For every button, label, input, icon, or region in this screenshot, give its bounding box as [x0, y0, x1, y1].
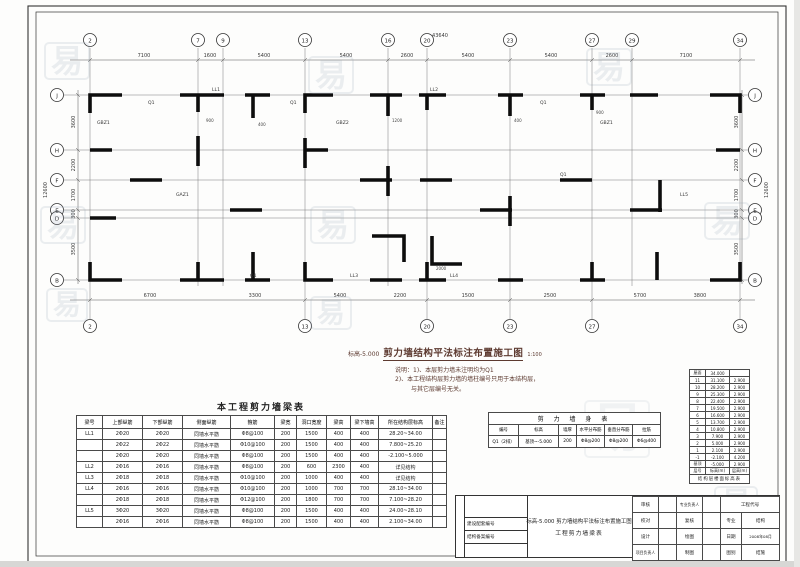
cell: 2Φ16: [143, 517, 183, 528]
cell: [433, 440, 447, 451]
cell: 2Φ16: [103, 517, 143, 528]
bottom-dimensions: 6700 3300 5400 2200 1500 2500 5700 3800: [144, 293, 707, 299]
title-block-grid: 审核 专业负责人 工程代号 校对 复核 专业 结构 设计: [632, 496, 779, 557]
wall-tag: Q1: [540, 100, 547, 106]
plan-scale: 1:100: [527, 352, 541, 358]
title-block-codes: 建设配套编号 结构备案编号: [464, 496, 528, 557]
floor-height: 2.900: [730, 433, 750, 440]
beam-row: 2Φ18 2Φ18 同墙水平筋 Φ12@100 200 1800 700 700…: [77, 495, 447, 506]
watermark-stamp: 易: [310, 296, 352, 330]
floor-elev: 19.500: [706, 405, 730, 412]
cell: 400: [351, 429, 379, 440]
beam-id-cell: LL4: [77, 484, 103, 495]
floor-elev: 22.400: [706, 398, 730, 405]
cell: 400: [327, 440, 351, 451]
plan-caption: 标高-5.000 剪力墙结构平法标注布置施工图 1:100: [348, 345, 648, 361]
cell: 1500: [297, 517, 327, 528]
wall-tag: Q1: [290, 100, 297, 106]
small-dim: 2000: [436, 266, 447, 271]
cell: 2Φ16: [103, 462, 143, 473]
cell: 1500: [297, 451, 327, 462]
cell: [433, 506, 447, 517]
wall-tag: LL5: [680, 192, 688, 198]
grid-row-label: B: [55, 279, 59, 285]
col-header: 垂直分布筋: [605, 425, 633, 436]
dim-label: 1700: [71, 189, 77, 202]
dim-label: 2200: [394, 293, 407, 299]
tb-label: 工程代号: [721, 497, 780, 513]
cell: Φ8@100: [231, 429, 275, 440]
small-dim: 900: [206, 118, 214, 123]
cell: 2Φ22: [143, 440, 183, 451]
wall-tag: GAZ1: [176, 192, 189, 198]
floor-elev: 5.000: [706, 440, 730, 447]
cell: Φ8@100: [231, 462, 275, 473]
floor-table-title: 结构层楼面标高表: [690, 475, 750, 484]
wall-tag: LL4: [450, 273, 458, 279]
wall-tag: LL3: [350, 273, 358, 279]
beam-row: LL3 2Φ18 2Φ18 同墙水平筋 Φ10@100 200 1000 400…: [77, 473, 447, 484]
tb-value: [659, 513, 677, 529]
beam-row: 2Φ16 2Φ16 同墙水平筋 Φ8@100 200 1500 400 400 …: [77, 517, 447, 528]
beam-id-cell: [77, 517, 103, 528]
dim-label: 2600: [401, 53, 414, 59]
dim-label: 3600: [71, 116, 77, 129]
cell: 200: [275, 517, 297, 528]
drawing-sheet: 易 易 易 易 易 易 易 易 易 易 易 易: [0, 0, 800, 567]
small-dim: 400: [514, 118, 522, 123]
floor-height: 2.900: [730, 377, 750, 384]
beam-id-cell: LL2: [77, 462, 103, 473]
cell: 200: [275, 462, 297, 473]
beam-row: 2Φ22 2Φ22 同墙水平筋 Φ10@100 200 1500 400 400…: [77, 440, 447, 451]
floor-no: 8: [690, 398, 706, 405]
cell: 详见结构: [379, 462, 433, 473]
cell: [433, 429, 447, 440]
floor-row: 屋面 34.000: [690, 370, 750, 377]
floor-row: 9 25.300 2.900: [690, 391, 750, 398]
wall-body-schedule: 剪 力 墙 身 表 编号 标高 墙厚 水平分布筋 垂直分布筋 拉筋 Q1（2排）…: [488, 412, 661, 448]
tb-value: [659, 545, 677, 561]
floor-height: 2.900: [730, 461, 750, 468]
col-header: 标高(m): [706, 468, 730, 475]
cell: 400: [351, 440, 379, 451]
floor-no: 5: [690, 419, 706, 426]
grid-row-label: H: [55, 149, 59, 155]
tb-label: 设计: [633, 529, 659, 545]
cell: [433, 462, 447, 473]
floor-row: -1 -2.100 4.200: [690, 454, 750, 461]
cell: 200: [275, 484, 297, 495]
floor-elev: 13.700: [706, 419, 730, 426]
grid-col-label: 20: [424, 39, 431, 45]
grid-row-label: E: [753, 209, 757, 215]
grid-col-label: 2: [88, 325, 92, 331]
scan-edge-bottom: [0, 561, 800, 567]
col-header: 下部纵筋: [143, 416, 183, 429]
cell: 200: [275, 495, 297, 506]
grid-col-label: 13: [302, 39, 309, 45]
cell: 2.100~34.00: [379, 517, 433, 528]
beam-row: LL4 2Φ16 2Φ16 同墙水平筋 Φ10@100 200 1000 700…: [77, 484, 447, 495]
floor-height: 2.900: [730, 391, 750, 398]
tb-value: [703, 497, 721, 513]
col-header: 拉筋: [633, 425, 661, 436]
dim-label: 5700: [634, 293, 647, 299]
drawing-title-line2: 工程剪力墙梁表: [526, 528, 632, 537]
dim-label: 6700: [144, 293, 157, 299]
dim-label: 3500: [71, 243, 77, 256]
floor-elev: 10.800: [706, 426, 730, 433]
floor-height: 2.900: [730, 426, 750, 433]
floor-no: 10: [690, 384, 706, 391]
cell: 600: [297, 462, 327, 473]
title-block: 建设配套编号 结构备案编号 标高-5.000 剪力墙结构平法标注布置施工图 工程…: [455, 495, 780, 558]
floor-row: 3 7.900 2.900: [690, 433, 750, 440]
note-line: 说明：1)、本层剪力墙未注明均为Q1: [395, 366, 625, 375]
tb-label: 绘图: [677, 529, 703, 545]
beam-id-cell: LL1: [77, 429, 103, 440]
watermark-stamp: 易: [46, 288, 88, 322]
cell: 200: [275, 473, 297, 484]
col-header: 水平分布筋: [577, 425, 605, 436]
tb-value: [703, 545, 721, 561]
watermark-stamp: 易: [586, 48, 632, 86]
cell: [433, 451, 447, 462]
cell: 400: [327, 451, 351, 462]
total-width-label: 43640: [432, 33, 448, 39]
cell: 1500: [297, 429, 327, 440]
cell: 同墙水平筋: [183, 473, 231, 484]
floor-row: 11 31.100 2.900: [690, 377, 750, 384]
col-header: 层号: [690, 468, 706, 475]
tb-label: 审核: [633, 497, 659, 513]
floor-height: [730, 370, 750, 377]
grid-col-label: 27: [589, 325, 596, 331]
top-grid-labels: 2 7 9 13 16 20 23 27 29 34: [88, 39, 744, 45]
wall-segments: [90, 95, 740, 280]
col-header: 备注: [433, 416, 447, 429]
floor-elevation-table: 屋面 34.000 11 31.100 2.900 10 28.200 2.90…: [689, 369, 750, 484]
floor-row: 8 22.400 2.900: [690, 398, 750, 405]
floor-height: 2.900: [730, 412, 750, 419]
code-label: 结构备案编号: [465, 531, 527, 544]
dim-label: 7100: [138, 53, 151, 59]
grid-row-label: H: [753, 149, 757, 155]
beam-header-row: 梁号 上部纵筋 下部纵筋 侧面纵筋 箍筋 梁宽 洞口宽度 梁高 梁下墙高 所在结…: [77, 416, 447, 429]
plan-title-text: 剪力墙结构平法标注布置施工图: [383, 345, 523, 361]
wall-tag-labels: Q1 GBZ1 LL1 Q1 GBZ2 LL2 Q1 GBZ1 LL3 LL4 …: [97, 87, 688, 279]
floor-no: 屋面: [690, 370, 706, 377]
cell: 同墙水平筋: [183, 429, 231, 440]
watermark-stamp: 易: [310, 206, 356, 244]
tb-label: 图别: [721, 545, 742, 561]
wall-tag: LL1: [212, 87, 220, 93]
bottom-grid-bubbles: [84, 320, 747, 333]
beam-id-cell: [77, 495, 103, 506]
grid-col-label: 23: [507, 39, 514, 45]
cell: 2Φ16: [103, 484, 143, 495]
floor-elev: 34.000: [706, 370, 730, 377]
floor-row: 5 13.700 2.900: [690, 419, 750, 426]
wall-data-row: Q1（2排） 基顶~-5.000 200 Φ8@200 Φ8@200 Φ6@40…: [489, 436, 661, 448]
wall-tag: Q1: [560, 172, 567, 178]
tb-label: 校对: [633, 513, 659, 529]
floor-height: 2.900: [730, 440, 750, 447]
col-header: 梁高: [327, 416, 351, 429]
right-grid-labels: J H F E D B: [753, 94, 757, 285]
cell: 200: [275, 506, 297, 517]
cell: 400: [351, 473, 379, 484]
floor-row: 2 5.000 2.900: [690, 440, 750, 447]
floor-no: 6: [690, 412, 706, 419]
cell: 同墙水平筋: [183, 451, 231, 462]
cell: [433, 473, 447, 484]
floor-no: 3: [690, 433, 706, 440]
floor-height: 2.900: [730, 398, 750, 405]
cell: Φ8@200: [605, 436, 633, 448]
cell: 400: [351, 506, 379, 517]
dim-label: 7100: [680, 53, 693, 59]
cell: Φ8@100: [231, 517, 275, 528]
tb-label: 项目负责人: [633, 545, 659, 561]
beam-row: LL5 3Φ20 3Φ20 同墙水平筋 Φ8@100 200 1500 400 …: [77, 506, 447, 517]
tb-label: 复核: [677, 513, 703, 529]
beam-schedule: 本工程剪力墙梁表 梁号 上部纵筋 下部纵筋 侧面纵筋 箍筋 梁宽 洞口宽度 梁高…: [76, 400, 446, 528]
cell: 1000: [297, 484, 327, 495]
floor-row: 4 10.800 2.900: [690, 426, 750, 433]
floor-footer-row: 层号 标高(m) 层高(m): [690, 468, 750, 475]
cell: 28.10~34.00: [379, 484, 433, 495]
beam-id-cell: [77, 440, 103, 451]
beam-row: 2Φ20 2Φ20 同墙水平筋 Φ8@100 200 1500 400 400 …: [77, 451, 447, 462]
floor-row: 1 2.100 2.900: [690, 447, 750, 454]
floor-no: 7: [690, 405, 706, 412]
dim-label: 3300: [249, 293, 262, 299]
total-height-label: 12600: [764, 182, 770, 198]
cell: 400: [327, 506, 351, 517]
cell: 1500: [297, 506, 327, 517]
cell: 7.100~28.20: [379, 495, 433, 506]
floor-no: 基顶: [690, 461, 706, 468]
floor-elev: 28.200: [706, 384, 730, 391]
elevation-label: 标高-5.000: [348, 349, 379, 358]
floor-no: -1: [690, 454, 706, 461]
col-header: 梁下墙高: [351, 416, 379, 429]
cell: [433, 484, 447, 495]
dim-label: 2500: [544, 293, 557, 299]
col-header: 层高(m): [730, 468, 750, 475]
cell: 2Φ22: [103, 440, 143, 451]
wall-tag: GBZ1: [600, 120, 613, 126]
floor-elev: 2.100: [706, 447, 730, 454]
left-grid-labels: J H F E D B: [55, 94, 59, 285]
beam-id-cell: [77, 451, 103, 462]
cell: [433, 517, 447, 528]
bottom-grid-labels: 2 13 20 23 27 34: [88, 325, 744, 331]
dim-label: 5400: [258, 53, 271, 59]
beam-id-cell: LL5: [77, 506, 103, 517]
col-header: 梁宽: [275, 416, 297, 429]
cell: 1500: [297, 440, 327, 451]
dim-label: 3800: [694, 293, 707, 299]
tb-label: 专业负责人: [677, 497, 703, 513]
dim-label: 1600: [204, 53, 217, 59]
beam-row: LL1 2Φ20 2Φ20 同墙水平筋 Φ8@100 200 1500 400 …: [77, 429, 447, 440]
watermark-stamp: 易: [308, 56, 354, 94]
cell: -2.100~5.000: [379, 451, 433, 462]
cell: 28.20~34.00: [379, 429, 433, 440]
floor-elev: 31.100: [706, 377, 730, 384]
grid-row-label: D: [753, 217, 757, 223]
cell: Φ10@100: [231, 484, 275, 495]
plan-notes: 说明：1)、本层剪力墙未注明均为Q1 2)、本工程结构层剪力墙的墙柱编号只用于本…: [395, 366, 625, 394]
scan-edge-right: [794, 0, 800, 567]
grid-row-label: J: [55, 94, 58, 100]
title-block-drawing-title: 标高-5.000 剪力墙结构平法标注布置施工图 工程剪力墙梁表: [526, 496, 633, 557]
dim-label: 1500: [462, 293, 475, 299]
col-header: 墙厚: [559, 425, 577, 436]
dim-label: 2200: [71, 159, 77, 172]
tb-value: 结构: [742, 513, 780, 529]
cell: 700: [327, 495, 351, 506]
watermark-stamp: 易: [40, 206, 86, 244]
tb-label: 制图: [677, 545, 703, 561]
grid-col-label: 20: [424, 325, 431, 331]
col-header: 箍筋: [231, 416, 275, 429]
dim-label: 5400: [545, 53, 558, 59]
cell: 400: [327, 429, 351, 440]
grid-col-label: 34: [737, 39, 744, 45]
cell: Φ8@200: [577, 436, 605, 448]
cell: 2Φ18: [143, 495, 183, 506]
dim-label: 2200: [734, 159, 740, 172]
floor-no: 9: [690, 391, 706, 398]
grid-col-label: 23: [507, 325, 514, 331]
wall-tag: Q1: [250, 273, 257, 279]
grid-row-label: F: [55, 179, 58, 185]
cell: Φ12@100: [231, 495, 275, 506]
cell: 同墙水平筋: [183, 506, 231, 517]
cell: 400: [327, 473, 351, 484]
cell: 3Φ20: [143, 506, 183, 517]
cell: 200: [275, 451, 297, 462]
wall-table-title: 剪 力 墙 身 表: [489, 413, 661, 425]
cell: 同墙水平筋: [183, 462, 231, 473]
col-header: 侧面纵筋: [183, 416, 231, 429]
cell: 2Φ18: [143, 473, 183, 484]
cell: 700: [351, 495, 379, 506]
tb-value: 2008年08月: [742, 529, 780, 545]
floor-elevation-schedule: 屋面 34.000 11 31.100 2.900 10 28.200 2.90…: [689, 369, 750, 484]
cell: 2Φ20: [103, 429, 143, 440]
floor-no: 11: [690, 377, 706, 384]
wall-tag: Q1: [148, 100, 155, 106]
cell: Φ8@100: [231, 506, 275, 517]
floor-row: 10 28.200 2.900: [690, 384, 750, 391]
dim-label: 3500: [734, 243, 740, 256]
floor-height: 2.900: [730, 405, 750, 412]
cell: Q1（2排）: [489, 436, 519, 448]
beam-row: LL2 2Φ16 2Φ16 同墙水平筋 Φ8@100 200 600 2300 …: [77, 462, 447, 473]
dim-label: 1700: [734, 189, 740, 202]
beam-id-cell: LL3: [77, 473, 103, 484]
wall-header-row: 编号 标高 墙厚 水平分布筋 垂直分布筋 拉筋: [489, 425, 661, 436]
cell: 2Φ20: [143, 429, 183, 440]
grid-col-label: 34: [737, 325, 744, 331]
cell: 200: [275, 429, 297, 440]
tb-value: [703, 513, 721, 529]
cell: 200: [559, 436, 577, 448]
cell: 700: [351, 484, 379, 495]
dim-label: 3600: [734, 116, 740, 129]
grid-col-label: 13: [302, 325, 309, 331]
wall-body-table: 剪 力 墙 身 表 编号 标高 墙厚 水平分布筋 垂直分布筋 拉筋 Q1（2排）…: [488, 412, 661, 448]
floor-elev: 7.900: [706, 433, 730, 440]
cell: Φ10@100: [231, 440, 275, 451]
cell: Φ10@100: [231, 473, 275, 484]
floor-height: 2.900: [730, 419, 750, 426]
small-dim: 1200: [392, 118, 403, 123]
note-line: 与其它层编号无关。: [395, 385, 625, 394]
cell: 7.800~25.20: [379, 440, 433, 451]
grid-col-label: 27: [589, 39, 596, 45]
tb-value: [703, 529, 721, 545]
small-dim: 900: [596, 110, 604, 115]
cell: 基顶~-5.000: [519, 436, 559, 448]
cell: 1000: [297, 473, 327, 484]
grid-row-label: J: [753, 94, 756, 100]
col-header: 所在结构层标高: [379, 416, 433, 429]
code-label: 建设配套编号: [465, 518, 527, 531]
cell: Φ8@100: [231, 451, 275, 462]
floor-row: 6 16.600 2.900: [690, 412, 750, 419]
watermark-stamp: 易: [704, 202, 750, 240]
wall-tag: GBZ2: [336, 120, 349, 126]
wall-tag: GBZ1: [97, 120, 110, 126]
grid-col-label: 9: [221, 39, 225, 45]
grid-lines: [64, 48, 748, 319]
cell: 同墙水平筋: [183, 495, 231, 506]
cell: 2300: [327, 462, 351, 473]
note-line: 2)、本工程结构层剪力墙的墙柱编号只用于本结构层，: [395, 375, 625, 384]
cell: 700: [327, 484, 351, 495]
cell: 2Φ20: [143, 451, 183, 462]
cell: 400: [351, 462, 379, 473]
grid-row-label: F: [753, 179, 756, 185]
top-grid-bubbles: [84, 34, 747, 47]
total-height-label: 12600: [43, 182, 49, 198]
floor-row: 基顶 -5.000 2.900: [690, 461, 750, 468]
drawing-title-line1: 标高-5.000 剪力墙结构平法标注布置施工图: [526, 517, 632, 525]
floor-elev: -2.100: [706, 454, 730, 461]
floor-height: 2.900: [730, 447, 750, 454]
left-grid-bubbles: [51, 89, 64, 287]
right-grid-bubbles: [749, 89, 762, 287]
cell: 400: [351, 451, 379, 462]
floor-elev: 25.300: [706, 391, 730, 398]
grid-row-label: B: [753, 279, 757, 285]
cell: 详见结构: [379, 473, 433, 484]
beam-schedule-title: 本工程剪力墙梁表: [76, 400, 446, 413]
cell: 24.00~28.10: [379, 506, 433, 517]
floor-elev: -5.000: [706, 461, 730, 468]
floor-height: 4.200: [730, 454, 750, 461]
floor-no: 1: [690, 447, 706, 454]
cell: Φ6@400: [633, 436, 661, 448]
cell: 2Φ20: [103, 451, 143, 462]
floor-height: 2.900: [730, 384, 750, 391]
